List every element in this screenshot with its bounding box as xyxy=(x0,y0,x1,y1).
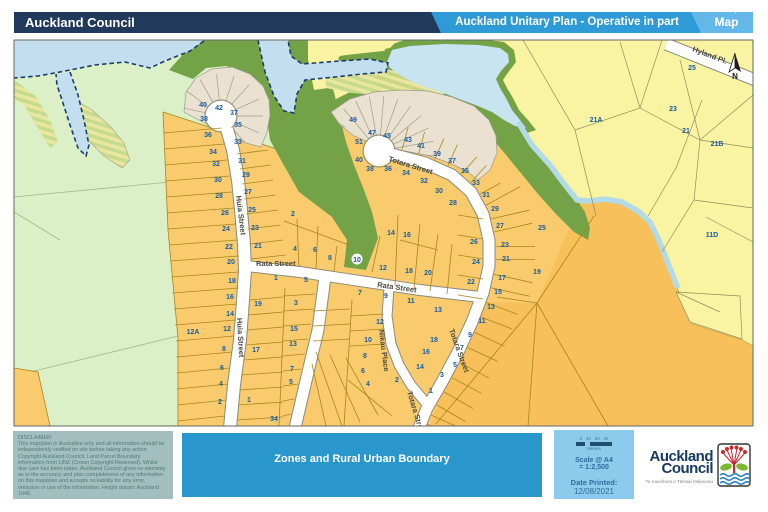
svg-text:51: 51 xyxy=(355,139,363,146)
svg-text:34: 34 xyxy=(402,170,410,177)
svg-text:22: 22 xyxy=(225,244,233,251)
svg-text:23: 23 xyxy=(501,242,509,249)
svg-text:24: 24 xyxy=(222,226,230,233)
svg-text:5: 5 xyxy=(289,379,293,386)
svg-text:4: 4 xyxy=(366,381,370,388)
svg-text:5: 5 xyxy=(304,277,308,284)
svg-text:32: 32 xyxy=(420,178,428,185)
svg-text:29: 29 xyxy=(491,206,499,213)
svg-text:1: 1 xyxy=(429,388,433,395)
svg-text:4: 4 xyxy=(293,246,297,253)
svg-text:21: 21 xyxy=(502,256,510,263)
svg-text:25: 25 xyxy=(248,207,256,214)
svg-text:16: 16 xyxy=(403,232,411,239)
svg-text:12: 12 xyxy=(379,265,387,272)
svg-text:5: 5 xyxy=(453,362,457,369)
svg-text:33: 33 xyxy=(472,180,480,187)
svg-text:32: 32 xyxy=(212,161,220,168)
svg-text:45: 45 xyxy=(383,133,391,140)
svg-text:25: 25 xyxy=(688,65,696,72)
svg-text:19: 19 xyxy=(254,301,262,308)
svg-text:16: 16 xyxy=(226,294,234,301)
svg-text:13: 13 xyxy=(289,341,297,348)
svg-text:4: 4 xyxy=(219,381,223,388)
svg-text:29: 29 xyxy=(242,172,250,179)
svg-text:30: 30 xyxy=(214,177,222,184)
svg-text:39: 39 xyxy=(433,151,441,158)
svg-text:24: 24 xyxy=(472,259,480,266)
svg-text:13: 13 xyxy=(487,304,495,311)
svg-text:12A: 12A xyxy=(187,329,200,336)
svg-text:15: 15 xyxy=(290,326,298,333)
svg-text:31: 31 xyxy=(482,192,490,199)
svg-text:41: 41 xyxy=(417,143,425,150)
svg-text:21: 21 xyxy=(254,243,262,250)
svg-text:20: 20 xyxy=(227,259,235,266)
svg-text:8: 8 xyxy=(222,346,226,353)
svg-text:35: 35 xyxy=(461,168,469,175)
svg-text:40: 40 xyxy=(199,102,207,109)
svg-text:37: 37 xyxy=(448,158,456,165)
svg-text:21A: 21A xyxy=(590,117,603,124)
svg-text:33: 33 xyxy=(234,139,242,146)
svg-text:37: 37 xyxy=(230,110,238,117)
svg-text:28: 28 xyxy=(215,193,223,200)
svg-text:28: 28 xyxy=(449,200,457,207)
svg-text:40: 40 xyxy=(355,157,363,164)
svg-text:18: 18 xyxy=(430,337,438,344)
svg-text:38: 38 xyxy=(200,116,208,123)
svg-text:7: 7 xyxy=(460,345,464,352)
svg-text:13: 13 xyxy=(434,307,442,314)
svg-text:31: 31 xyxy=(238,158,246,165)
svg-text:1: 1 xyxy=(247,397,251,404)
svg-text:14: 14 xyxy=(226,311,234,318)
svg-text:23: 23 xyxy=(251,225,259,232)
svg-text:7: 7 xyxy=(358,290,362,297)
svg-text:9: 9 xyxy=(384,293,388,300)
svg-text:21B: 21B xyxy=(711,141,724,148)
svg-text:38: 38 xyxy=(366,166,374,173)
svg-text:20: 20 xyxy=(424,270,432,277)
svg-text:47: 47 xyxy=(368,130,376,137)
svg-text:26: 26 xyxy=(470,239,478,246)
svg-text:12: 12 xyxy=(376,319,384,326)
svg-text:10: 10 xyxy=(353,257,361,264)
svg-text:18: 18 xyxy=(228,278,236,285)
svg-text:12: 12 xyxy=(223,326,231,333)
svg-text:2: 2 xyxy=(291,211,295,218)
svg-text:16: 16 xyxy=(422,349,430,356)
svg-text:14: 14 xyxy=(416,364,424,371)
svg-text:3: 3 xyxy=(294,300,298,307)
svg-text:3: 3 xyxy=(440,372,444,379)
svg-text:35: 35 xyxy=(234,122,242,129)
svg-text:17: 17 xyxy=(498,275,506,282)
svg-text:30: 30 xyxy=(435,188,443,195)
svg-text:15: 15 xyxy=(494,289,502,296)
svg-text:25: 25 xyxy=(538,225,546,232)
svg-text:2: 2 xyxy=(395,377,399,384)
svg-text:2: 2 xyxy=(218,399,222,406)
svg-text:27: 27 xyxy=(244,189,252,196)
svg-text:18: 18 xyxy=(405,268,413,275)
svg-text:21: 21 xyxy=(682,128,690,135)
svg-text:17: 17 xyxy=(252,347,260,354)
svg-text:19: 19 xyxy=(533,269,541,276)
svg-text:42: 42 xyxy=(215,105,223,112)
svg-text:27: 27 xyxy=(496,223,504,230)
svg-text:7: 7 xyxy=(290,366,294,373)
svg-text:34: 34 xyxy=(209,149,217,156)
svg-text:11D: 11D xyxy=(706,232,718,239)
svg-text:49: 49 xyxy=(349,117,357,124)
svg-text:6: 6 xyxy=(220,365,224,372)
svg-text:11: 11 xyxy=(407,298,415,305)
svg-text:34: 34 xyxy=(270,416,278,423)
svg-text:Rata Street: Rata Street xyxy=(256,259,296,268)
svg-text:22: 22 xyxy=(467,279,475,286)
svg-text:43: 43 xyxy=(404,137,412,144)
svg-text:6: 6 xyxy=(361,368,365,375)
svg-text:36: 36 xyxy=(204,132,212,139)
svg-text:23: 23 xyxy=(669,106,677,113)
svg-text:26: 26 xyxy=(221,210,229,217)
svg-text:36: 36 xyxy=(384,166,392,173)
svg-text:10: 10 xyxy=(364,337,372,344)
svg-text:8: 8 xyxy=(328,255,332,262)
svg-text:8: 8 xyxy=(363,353,367,360)
svg-text:9: 9 xyxy=(468,332,472,339)
svg-text:6: 6 xyxy=(313,247,317,254)
svg-text:14: 14 xyxy=(387,230,395,237)
svg-text:1: 1 xyxy=(274,275,278,282)
svg-text:N: N xyxy=(732,72,738,81)
svg-text:11: 11 xyxy=(478,318,486,325)
